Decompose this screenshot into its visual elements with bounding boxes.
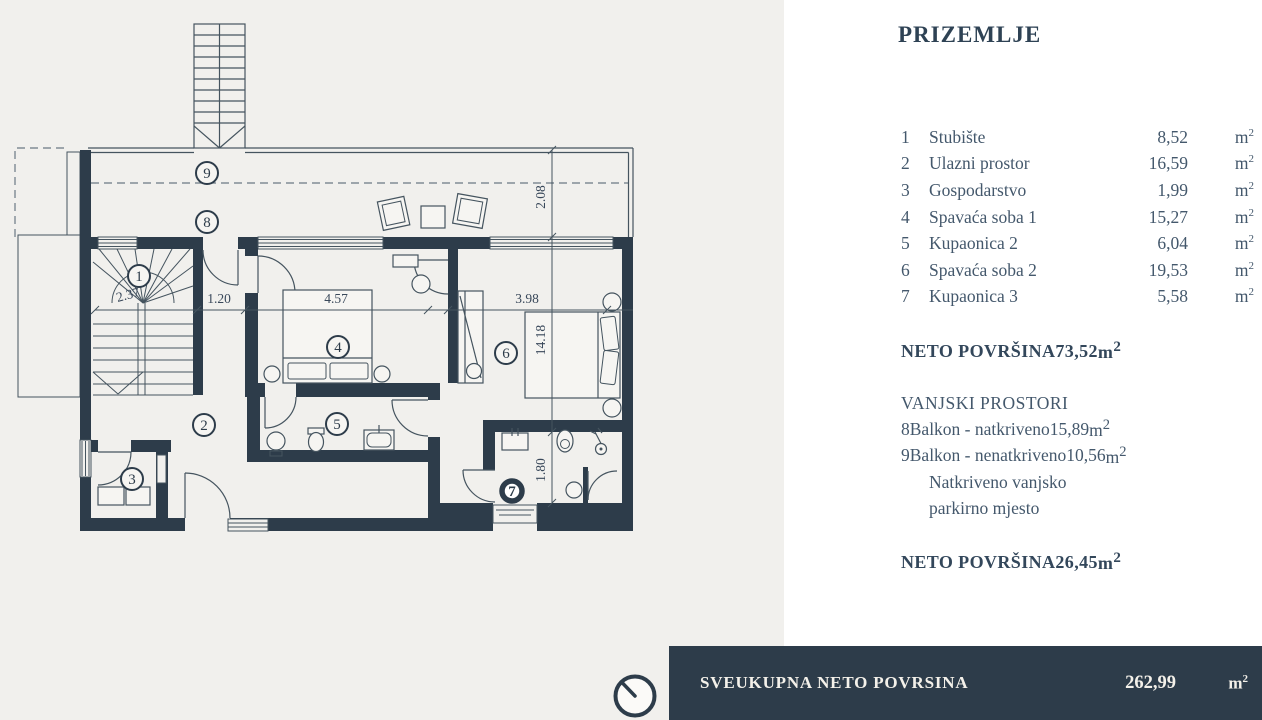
room-label-1: 1: [135, 269, 143, 285]
table-row: 2 Ulazni prostor 16,59 m2: [901, 151, 1254, 178]
table-row: 8 Balkon - natkriveno 15,89 m2: [901, 416, 1254, 443]
unit-m2: m2: [1188, 260, 1254, 281]
neto-interior-row: NETO POVRŠINA 73,52 m2: [901, 338, 1254, 365]
total-label: SVEUKUPNA NETO POVRSINA: [700, 673, 968, 693]
outdoor-note-line1: Natkriveno vanjsko: [929, 469, 1067, 496]
table-row: 1 Stubište 8,52 m2: [901, 124, 1254, 151]
unit-m2: m2: [1188, 153, 1254, 174]
hatched-wall-areas: [18, 152, 80, 397]
unit-m2: m2: [1176, 673, 1262, 694]
room-table: 1 Stubište 8,52 m2 2 Ulazni prostor 16,5…: [901, 124, 1254, 310]
bathroom3-steps: [493, 505, 537, 523]
clock-icon: [612, 673, 658, 719]
table-row: 3 Gospodarstvo 1,99 m2: [901, 177, 1254, 204]
unit-m2: m2: [1098, 550, 1121, 574]
dim-bedroom2: 3.98: [515, 291, 539, 306]
table-row: 9 Balkon - nenatkriveno 10,56 m2: [901, 443, 1254, 470]
neighbour-dashed-outline: [15, 148, 67, 237]
table-row: 4 Spavaća soba 1 15,27 m2: [901, 204, 1254, 231]
entrance-steps: [228, 519, 268, 531]
room-label-6: 6: [502, 346, 510, 362]
room-label-3: 3: [128, 472, 136, 488]
dim-building: 14.18: [533, 325, 548, 356]
bedroom1-furniture: [264, 255, 430, 383]
unit-m2: m2: [1188, 233, 1254, 254]
outdoor-header-row: VANJSKI PROSTORI: [901, 390, 1254, 417]
outdoor-header: VANJSKI PROSTORI: [901, 393, 1068, 414]
balcony-chairs-and-table: [377, 194, 487, 231]
unit-m2: m2: [1188, 286, 1254, 307]
neto-outdoor-row: NETO POVRŠINA 26,45 m2: [901, 549, 1254, 576]
external-staircase: [194, 24, 245, 148]
room-label-5: 5: [333, 417, 341, 433]
total-value: 262,99: [1125, 673, 1176, 694]
room-label-9: 9: [203, 166, 211, 182]
unit-m2: m2: [1106, 444, 1127, 468]
outdoor-note-line2: parkirno mjesto: [929, 496, 1039, 523]
total-bar: SVEUKUPNA NETO POVRSINA 262,99 m2: [669, 646, 1262, 720]
table-row: 5 Kupaonica 2 6,04 m2: [901, 230, 1254, 257]
dim-balcony: 2.08: [533, 185, 548, 209]
unit-m2: m2: [1188, 180, 1254, 201]
dim-corridor: 1.20: [207, 291, 231, 306]
balcony-railing: [88, 148, 633, 237]
unit-m2: m2: [1188, 207, 1254, 228]
room-label-8: 8: [203, 215, 211, 231]
page-title: PRIZEMLJE: [898, 22, 1041, 48]
unit-m2: m2: [1098, 339, 1121, 363]
floor-plan: .wall { fill:#2d3c4a; } .thin { stroke:#…: [0, 0, 784, 720]
legend-panel: PRIZEMLJE 1 Stubište 8,52 m2 2 Ulazni pr…: [784, 0, 1262, 720]
dim-bedroom1: 4.57: [324, 291, 348, 306]
dim-bath3: 1.80: [533, 458, 548, 482]
room-label-4: 4: [334, 340, 342, 356]
unit-m2: m2: [1188, 127, 1254, 148]
room-label-7: 7: [508, 484, 516, 500]
room-label-2: 2: [200, 418, 208, 434]
unit-m2: m2: [1089, 417, 1110, 441]
table-row: 6 Spavaća soba 2 19,53 m2: [901, 257, 1254, 284]
table-row: 7 Kupaonica 3 5,58 m2: [901, 284, 1254, 311]
